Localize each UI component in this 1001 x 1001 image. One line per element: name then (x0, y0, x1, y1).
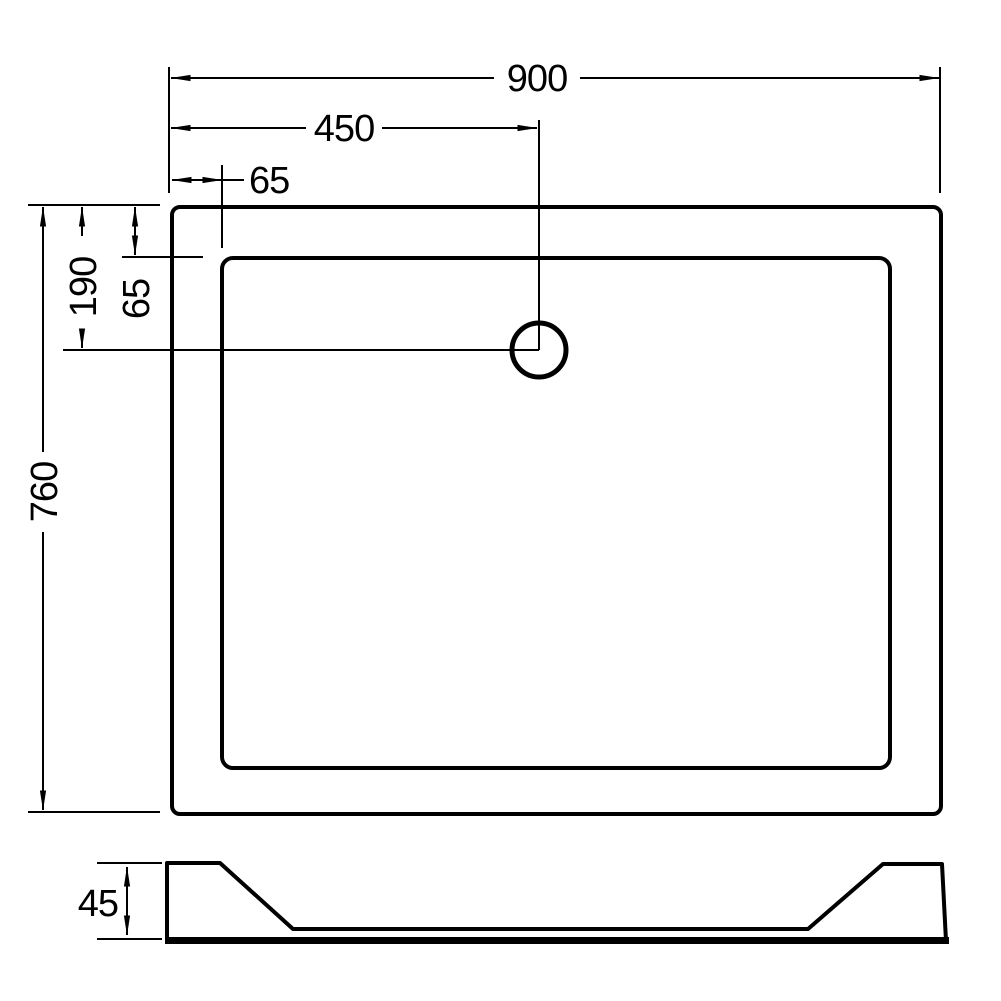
profile-view: 45 (78, 863, 949, 944)
profile-outline (167, 863, 946, 941)
plan-view: 900 450 65 760 (24, 58, 941, 814)
dim-760-label: 760 (24, 462, 66, 522)
drawing-svg: 900 450 65 760 (0, 0, 1001, 1001)
technical-drawing: 900 450 65 760 (0, 0, 1001, 1001)
dimension-overall-width: 900 (171, 58, 939, 100)
profile-base-bar (165, 937, 949, 944)
dim-190-label: 190 (63, 257, 105, 317)
dim-65-top-label: 65 (249, 160, 289, 202)
dim-900-label: 900 (507, 58, 567, 100)
dimension-drain-offset-x: 450 (171, 108, 537, 150)
dimension-tray-height: 45 (78, 867, 127, 935)
dimension-drain-offset-y: 190 (63, 207, 105, 348)
dimension-overall-depth: 760 (24, 207, 66, 810)
dimension-rim-inset-y: 65 (116, 207, 158, 319)
dim-65-left-label: 65 (116, 279, 158, 319)
dim-450-label: 450 (314, 108, 374, 150)
tray-inner-outline (222, 258, 890, 768)
dimension-rim-inset-x: 65 (172, 160, 289, 202)
dim-45-label: 45 (78, 883, 118, 925)
